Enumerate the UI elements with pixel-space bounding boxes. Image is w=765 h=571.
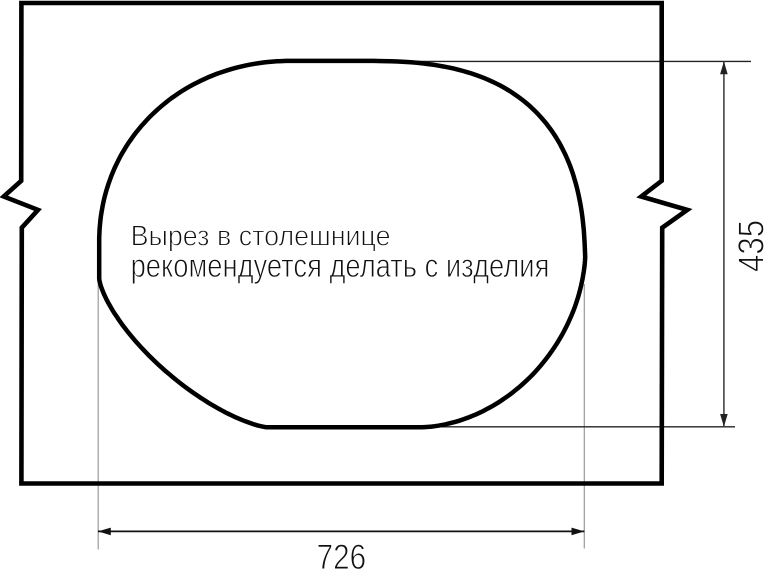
svg-text:726: 726 — [317, 538, 367, 571]
svg-text:рекомендуется делать с изделия: рекомендуется делать с изделия — [131, 247, 550, 284]
svg-text:435: 435 — [731, 220, 765, 272]
